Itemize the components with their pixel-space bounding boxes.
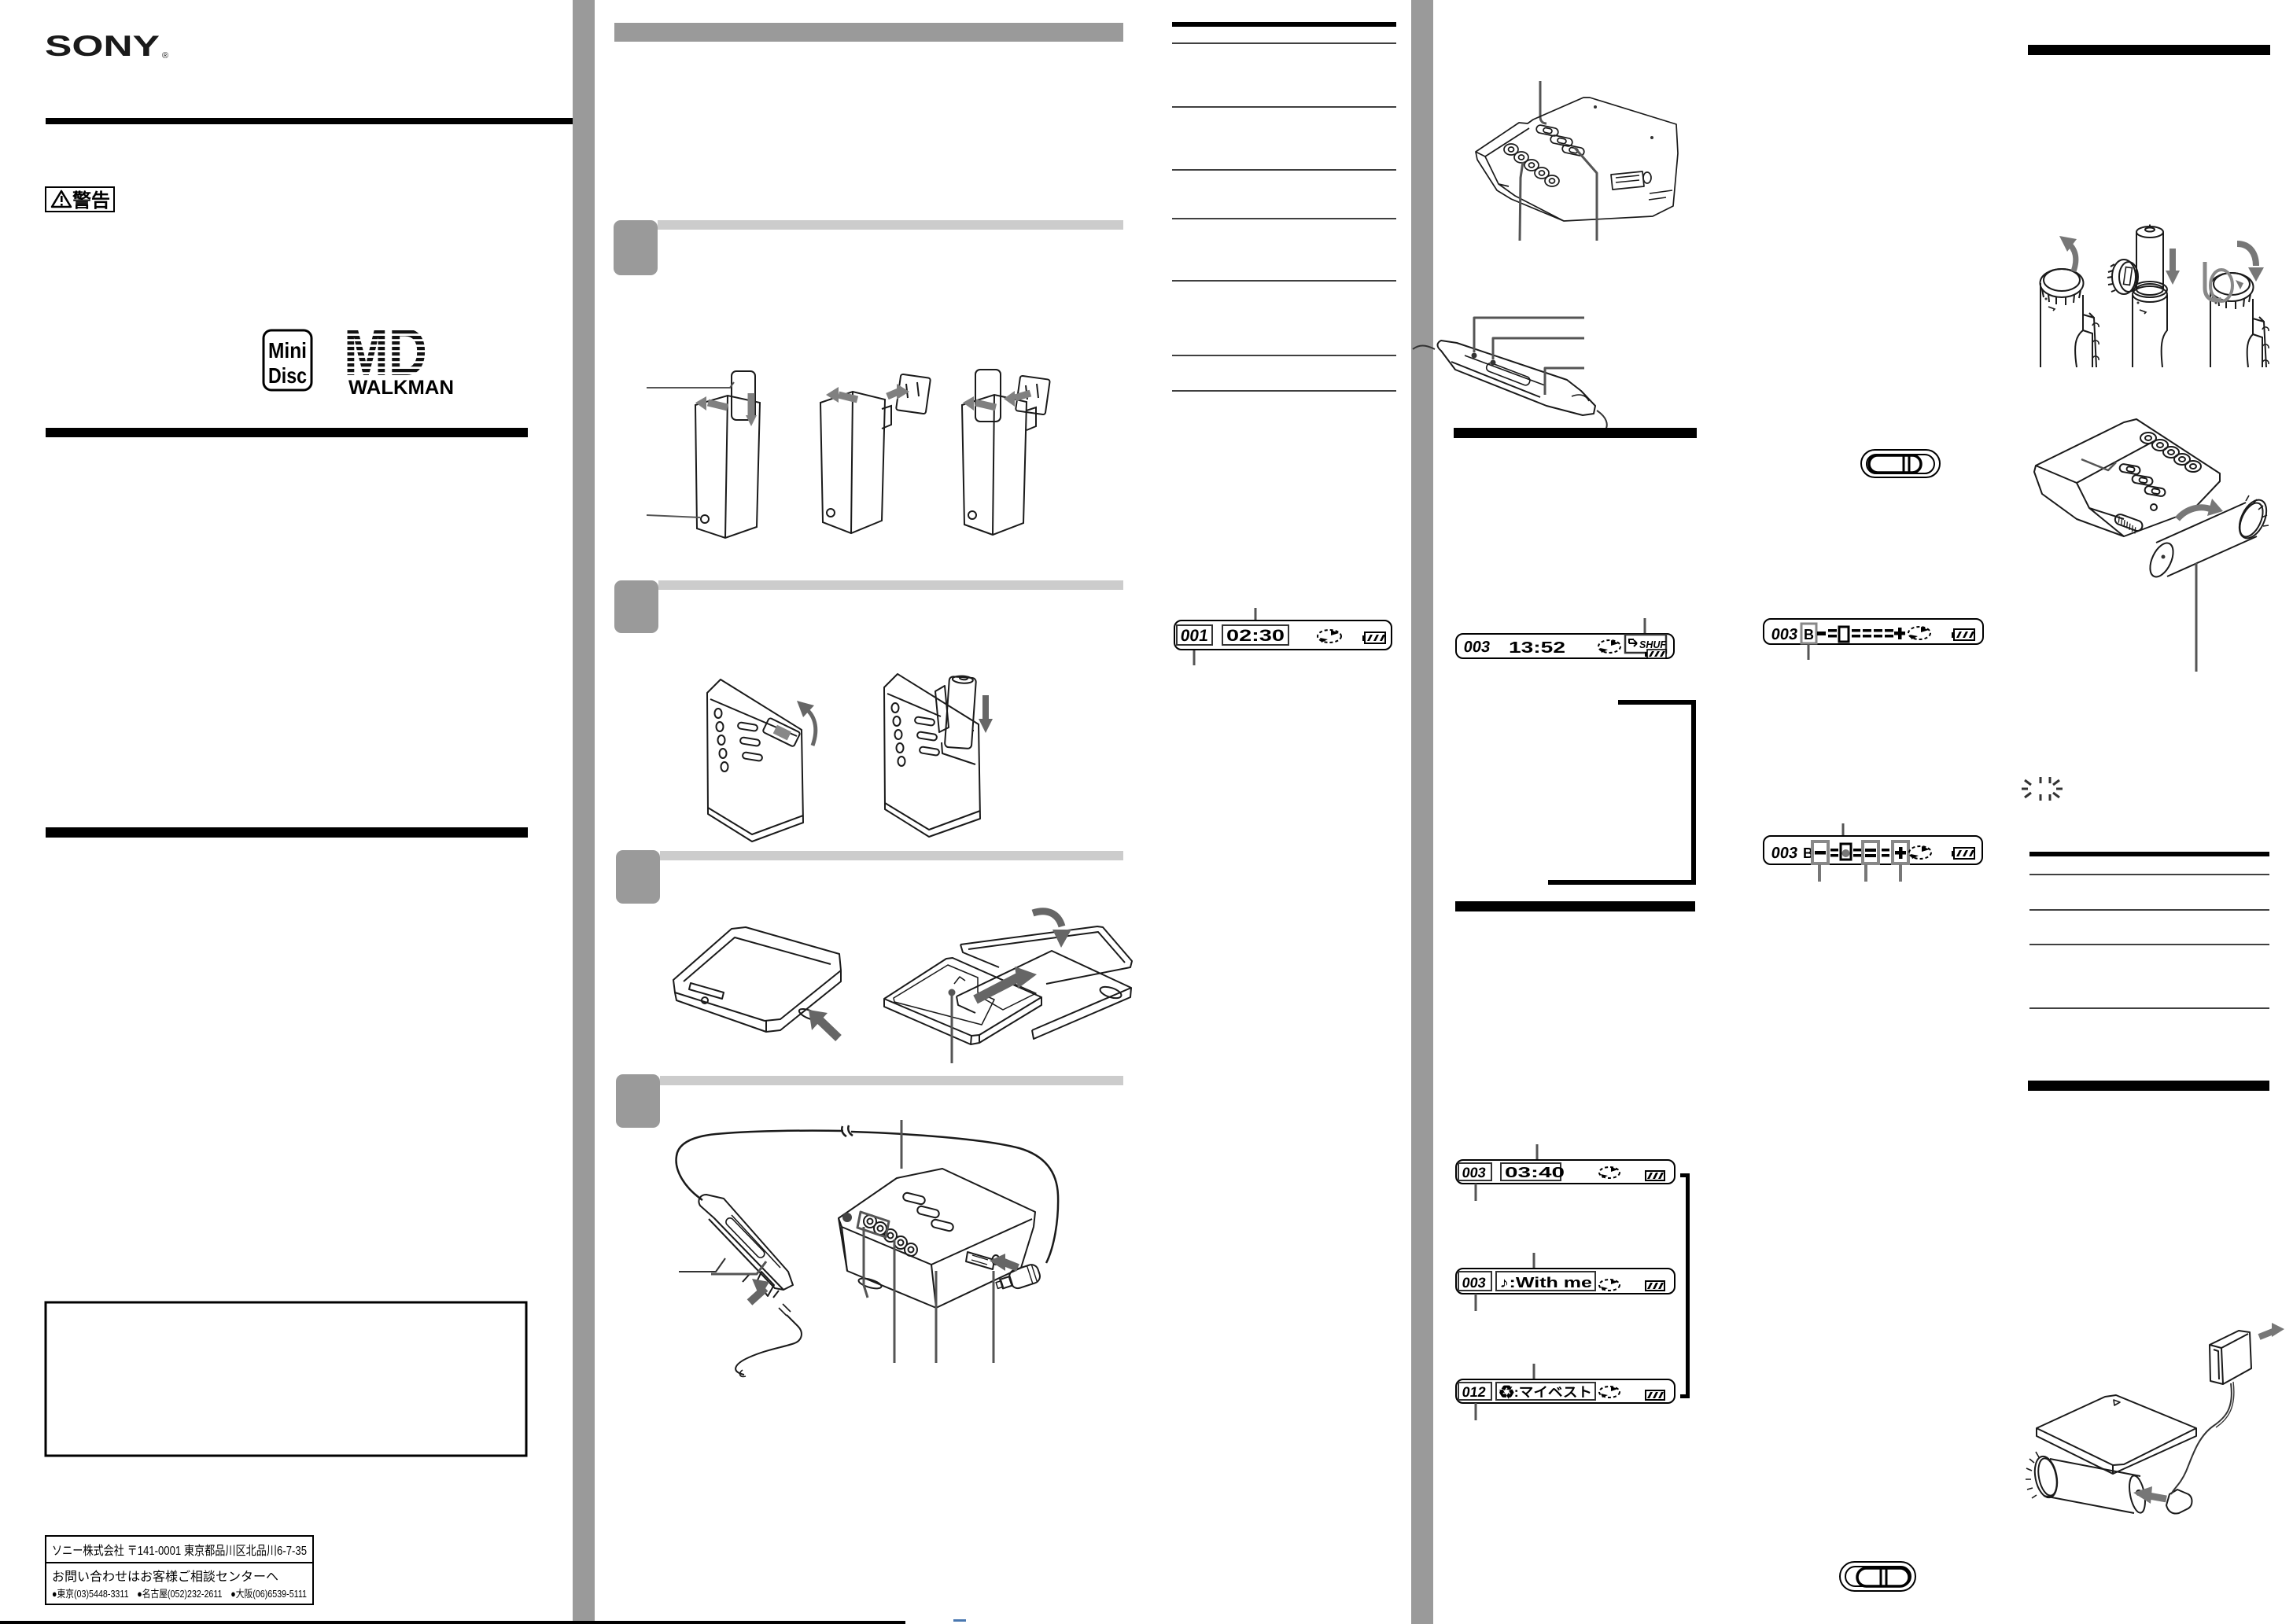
svg-text:WALKMAN: WALKMAN — [348, 377, 454, 399]
svg-text:Disc: Disc — [268, 363, 307, 388]
svg-text:B: B — [1804, 627, 1814, 643]
svg-text:02:30: 02:30 — [1226, 627, 1285, 645]
svg-text:03:40: 03:40 — [1505, 1165, 1565, 1180]
svg-text:♻:マイベスト: ♻:マイベスト — [1499, 1385, 1592, 1400]
svg-text:003: 003 — [1461, 1275, 1487, 1291]
svg-text:SHUF: SHUF — [1639, 639, 1666, 650]
svg-text:001: 001 — [1179, 627, 1210, 645]
svg-text:003: 003 — [1770, 845, 1798, 862]
svg-text:003: 003 — [1462, 639, 1491, 656]
svg-text:お問い合わせはお客様ご相談センターヘ: お問い合わせはお客様ご相談センターヘ — [52, 1570, 278, 1584]
svg-text:012: 012 — [1461, 1384, 1487, 1400]
svg-text:®: ® — [162, 51, 168, 61]
svg-text:13:52: 13:52 — [1509, 639, 1565, 657]
svg-text:●東京(03)5448-3311 ●名古屋(052)232-: ●東京(03)5448-3311 ●名古屋(052)232-2611 ●大阪(0… — [52, 1588, 307, 1600]
svg-text:003: 003 — [1770, 626, 1798, 643]
svg-text:Mini: Mini — [268, 338, 307, 363]
svg-text:警告: 警告 — [72, 190, 110, 212]
svg-text:SONY: SONY — [45, 30, 160, 62]
svg-text:003: 003 — [1461, 1165, 1487, 1180]
svg-text:ソニー株式会社 〒141-0001 東京都品川区北品川6: ソニー株式会社 〒141-0001 東京都品川区北品川6-7-35 — [52, 1544, 307, 1558]
svg-text:♪:With me: ♪:With me — [1499, 1275, 1592, 1291]
